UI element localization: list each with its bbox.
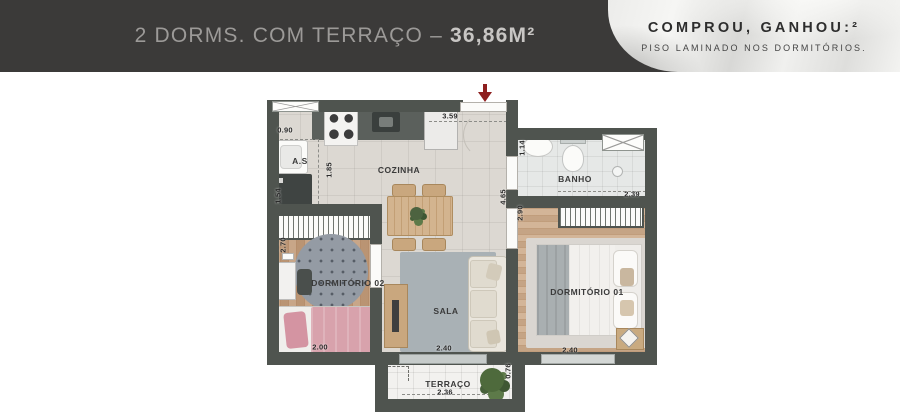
dim-terrace-depth: 0.76 [504,363,512,378]
shower-drain [612,166,623,177]
bed-accent-pillow [620,300,634,316]
kitchen-sink-basin [379,117,393,127]
wall-outer-right [645,128,657,365]
service-window [272,101,319,112]
dining-chair [392,238,416,251]
service-boundary-line-v [318,139,319,204]
sofa-cushion [470,290,497,318]
dining-chair [422,238,446,251]
wall-bedroom2-bottom [267,352,382,365]
desk-deco [282,253,294,260]
dim-circulation: 4.65 [499,189,507,204]
terrace-corner-marking [388,366,409,381]
wall-terrace-bottom [375,399,525,412]
dim-bath-width: 2.39 [624,190,639,198]
dim-bedroom2-width: 2.00 [312,343,327,351]
entry-door [460,102,507,112]
bedroom1-wardrobe [558,206,644,228]
service-boundary-line [280,139,318,140]
floor-plan: A.S COZINHA BANHO DORMITÓRIO 02 DORMITÓR… [0,0,900,415]
label-kitchen: COZINHA [378,166,420,175]
dim-kitchen-depth: 1.85 [325,162,333,177]
bedroom1-window [541,354,615,364]
dim-terrace-width: 2.36 [437,388,452,396]
label-living: SALA [433,307,458,316]
dim-service-window: 0.90 [277,126,292,134]
terrace-sliding-door [399,354,487,364]
label-service-area: A.S [292,157,308,166]
wall-service-bedroom2 [267,204,382,214]
label-bedroom2: DORMITÓRIO 02 [311,279,385,288]
dim-bedroom2-depth: 2.70 [279,237,287,252]
dim-bedroom1-width: 2.40 [562,346,577,354]
bathroom-door [506,156,518,190]
entrance-arrow-icon [477,84,493,103]
label-bathroom: BANHO [558,175,592,184]
dim-service-depth: 1.54 [274,188,282,203]
dim-bath-entry: 1.14 [518,140,526,155]
stove [324,108,358,146]
wall-bedroom2-right-upper [370,214,382,244]
label-bedroom1: DORMITÓRIO 01 [550,288,624,297]
wall-outer-left [267,100,279,365]
desk-chair [297,269,312,295]
dim-kitchen-width: 3.59 [442,112,457,120]
shower-niche [602,134,644,151]
desk [278,262,296,300]
entry-door-arc [463,112,509,158]
bedroom2-pillow [283,311,309,349]
tv [392,300,399,332]
wall-living-bedroom1 [506,248,518,365]
bed-accent-pillow [620,268,634,286]
floorplan-page: 2 DORMS. COM TERRAÇO – 36,86M² COMPROU, … [0,0,900,415]
toilet-bowl [562,145,584,172]
table-plant [410,207,423,220]
terrace-plant [480,368,504,392]
throw-pillow [486,329,501,345]
dim-bedroom1-depth: 2.90 [516,205,524,220]
dim-living-width: 2.40 [436,344,451,352]
